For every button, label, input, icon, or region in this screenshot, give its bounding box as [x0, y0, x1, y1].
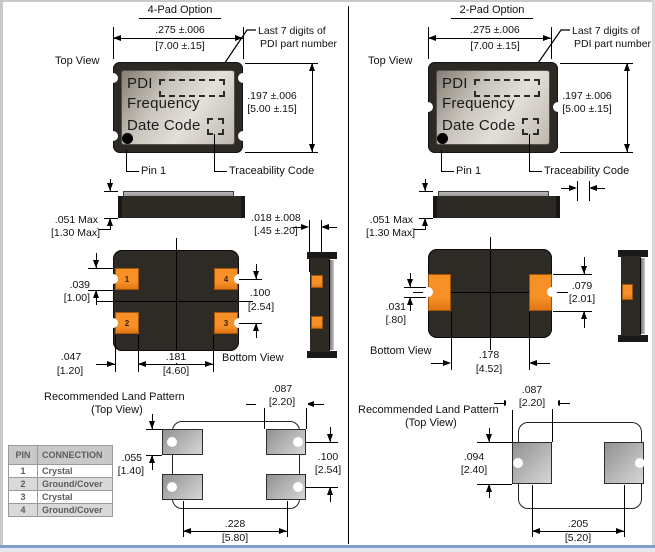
package-frequency: Frequency	[442, 95, 515, 112]
left-land-pad-w-in: .087	[256, 383, 308, 395]
leader-line	[441, 171, 454, 172]
ext-line	[239, 279, 262, 280]
edge-pad	[311, 316, 323, 329]
pin1-dot	[437, 133, 448, 144]
ext-line	[213, 335, 214, 372]
ext-line	[512, 410, 513, 442]
ext-line	[115, 335, 116, 372]
ext-line	[553, 274, 592, 275]
table-row: 3 Crystal	[9, 491, 113, 504]
right-side-view-body	[433, 196, 560, 218]
castellation-notch	[238, 73, 248, 83]
castellation-notch	[108, 318, 118, 328]
arrowhead	[428, 35, 436, 41]
arrowhead	[138, 361, 146, 367]
left-dim-height-in: .197 ±.006	[238, 90, 306, 102]
dim-line	[113, 38, 243, 39]
pad-1: 1	[115, 268, 139, 290]
centerline	[97, 301, 253, 302]
ext-line	[551, 27, 552, 59]
ext-line	[451, 312, 452, 370]
ext-line	[245, 152, 318, 153]
leader-line	[126, 171, 139, 172]
land-notch	[167, 437, 177, 447]
ext-line	[404, 287, 426, 288]
right-dim-notch-mm: [.80]	[372, 314, 406, 326]
arrowhead	[569, 185, 577, 191]
cell-connection: Ground/Cover	[38, 478, 113, 491]
ext-line	[419, 191, 433, 192]
package-date-code: Date Code	[127, 117, 201, 134]
arrowhead	[279, 528, 287, 534]
edge-body	[310, 258, 330, 352]
arrowhead	[113, 35, 121, 41]
dim-line	[597, 188, 605, 189]
edge-cap	[307, 351, 337, 358]
package-date-code: Date Code	[442, 117, 516, 134]
ext-line	[560, 152, 633, 153]
right-bottom-view-label: Bottom View	[370, 345, 432, 357]
left-top-view-label: Top View	[55, 55, 99, 67]
right-package-top-view: PDI Frequency Date Code	[428, 62, 558, 153]
land-notch	[293, 437, 303, 447]
arrowhead	[309, 63, 315, 71]
right-dim-pitch-h-in: .178	[464, 349, 514, 361]
ext-line	[146, 429, 162, 430]
left-land-pitch-v-mm: [2.54]	[309, 464, 347, 476]
left-land-pitch-h-mm: [5.80]	[207, 532, 263, 544]
ext-line	[287, 501, 288, 537]
left-land-title2: (Top View)	[91, 404, 143, 416]
arrowhead	[581, 266, 587, 274]
arrowhead	[422, 218, 428, 226]
left-land-pitch-v-in: .100	[311, 451, 345, 463]
left-dim-pad-w-in: .047	[50, 351, 92, 363]
left-section-title: 4-Pad Option	[139, 4, 221, 19]
ext-line	[243, 27, 244, 59]
left-dim-pad-h-in: .039	[48, 279, 90, 291]
ext-line	[113, 27, 114, 59]
traceability-box	[207, 118, 224, 135]
dim-line	[246, 404, 256, 405]
dim-line	[627, 63, 628, 152]
leader-line	[529, 171, 542, 172]
arrowhead	[486, 484, 492, 492]
castellation-notch	[423, 102, 433, 112]
left-dim-width-in: .275 ±.006	[137, 24, 223, 36]
package-brand: PDI	[442, 75, 468, 92]
left-dim-pitch-h-in: .181	[153, 351, 199, 363]
arrowhead	[532, 528, 540, 534]
edge-lid	[329, 260, 334, 350]
left-dim-pitch-v-mm: [2.54]	[240, 301, 282, 313]
leader-line	[126, 150, 127, 171]
left-dim-thick-mm: [1.30 Max]	[34, 227, 100, 239]
castellation-notch	[108, 73, 118, 83]
right-edge-view	[618, 250, 648, 342]
dim-line	[312, 63, 313, 152]
ext-line	[428, 27, 429, 59]
left-traceability-label: Traceability Code	[229, 165, 314, 177]
castellation-notch	[108, 274, 118, 284]
arrowhead	[93, 260, 99, 268]
ext-line	[306, 442, 338, 443]
edge-pad	[311, 275, 323, 288]
right-dim-thick-in: .051 Max	[353, 214, 413, 226]
edge-lid	[640, 258, 645, 334]
arrowhead	[443, 360, 451, 366]
cell-pin: 4	[9, 504, 38, 517]
left-land-pad-h-in: .055	[110, 452, 142, 464]
right-callout-line1: Last 7 digits of	[572, 25, 640, 37]
left-package-top-view: PDI Frequency Date Code	[113, 62, 243, 153]
arrowhead	[486, 434, 492, 442]
dim-line	[537, 363, 550, 364]
ext-line	[245, 63, 318, 64]
arrowhead	[327, 487, 333, 495]
table-row: 2 Ground/Cover	[9, 478, 113, 491]
arrowhead	[616, 528, 624, 534]
left-callout-line1: Last 7 digits of	[258, 25, 326, 37]
ext-line	[589, 181, 590, 201]
right-land-pad-w-in: .087	[506, 384, 558, 396]
right-pin1-label: Pin 1	[456, 165, 481, 177]
right-land-title2: (Top View)	[405, 417, 457, 429]
dim-line	[329, 227, 337, 228]
package-brand: PDI	[127, 75, 153, 92]
arrowhead	[624, 63, 630, 71]
pin-connection-table: PIN CONNECTION 1 Crystal 2 Ground/Cover …	[8, 445, 113, 517]
arrowhead	[183, 528, 191, 534]
castellation-notch	[108, 131, 118, 141]
left-dim-lid-in: .018 ±.008	[246, 212, 306, 224]
left-land-title1: Recommended Land Pattern	[44, 391, 185, 403]
arrowhead	[235, 35, 243, 41]
ext-line	[477, 442, 512, 443]
land-notch	[635, 458, 645, 468]
edge-pad	[622, 284, 633, 300]
arrowhead	[149, 455, 155, 463]
right-land-title1: Recommended Land Pattern	[358, 404, 499, 416]
left-pin1-label: Pin 1	[141, 165, 166, 177]
cell-pin: 3	[9, 491, 38, 504]
left-dim-height-mm: [5.00 ±.15]	[236, 103, 308, 115]
right-traceability-label: Traceability Code	[544, 165, 629, 177]
arrowhead	[422, 183, 428, 191]
leader-line	[414, 229, 425, 230]
left-land-pad-w-mm: [2.20]	[256, 396, 308, 408]
dim-line	[494, 403, 504, 404]
left-edge-view	[307, 252, 337, 358]
pin1-dot	[122, 133, 133, 144]
castellation-notch	[547, 287, 557, 297]
right-land-pad-h-mm: [2.40]	[451, 464, 497, 476]
traceability-box	[522, 118, 539, 135]
mechanical-drawing-page: 4-Pad Option .275 ±.006 [7.00 ±.15] Top …	[0, 0, 655, 552]
cell-connection: Crystal	[38, 465, 113, 478]
arrowhead	[543, 35, 551, 41]
package-frequency: Frequency	[127, 95, 200, 112]
table-header-pin: PIN	[9, 446, 38, 465]
arrowhead	[149, 421, 155, 429]
right-dim-thick-mm: [1.30 Max]	[349, 227, 415, 239]
arrowhead	[301, 224, 309, 230]
left-dim-pad-h-mm: [1.00]	[44, 292, 90, 304]
left-land-pitch-h-in: .228	[210, 518, 260, 530]
castellation-notch	[423, 287, 433, 297]
leader-line	[214, 134, 215, 171]
table-row: 1 Crystal	[9, 465, 113, 478]
cell-pin: 1	[9, 465, 38, 478]
arrowhead	[107, 361, 115, 367]
arrowhead	[321, 224, 329, 230]
arrowhead	[407, 279, 413, 287]
right-dim-notch-in: .031	[374, 301, 406, 313]
arrowhead	[407, 297, 413, 305]
left-dim-width-mm: [7.00 ±.15]	[137, 40, 223, 52]
right-top-view-label: Top View	[368, 55, 412, 67]
left-dim-thick-in: .051 Max	[38, 214, 98, 226]
left-dim-pad-w-mm: [1.20]	[46, 365, 94, 377]
leader-line	[529, 134, 530, 171]
arrowhead	[327, 434, 333, 442]
ext-line	[306, 487, 338, 488]
right-land-pad-h-in: .094	[454, 451, 494, 463]
table-row: 4 Ground/Cover	[9, 504, 113, 517]
cell-connection: Ground/Cover	[38, 504, 113, 517]
arrowhead	[107, 183, 113, 191]
cell-connection: Crystal	[38, 491, 113, 504]
left-side-view-body	[118, 196, 245, 218]
arrowhead	[529, 360, 537, 366]
arrowhead	[107, 218, 113, 226]
ext-line	[88, 268, 115, 269]
left-dim-pitch-v-in: .100	[243, 287, 277, 299]
arrowhead	[205, 361, 213, 367]
dim-line	[314, 404, 324, 405]
arrowhead	[93, 290, 99, 298]
arrowhead	[624, 144, 630, 152]
part-number-box	[474, 79, 540, 97]
left-bottom-view-label: Bottom View	[222, 352, 284, 364]
right-dim-width-in: .275 ±.006	[452, 24, 538, 36]
right-section-title: 2-Pad Option	[451, 4, 533, 19]
right-dim-height-in: .197 ±.006	[553, 90, 621, 102]
left-dim-pitch-h-mm: [4.60]	[150, 365, 202, 377]
land-notch	[293, 482, 303, 492]
part-number-box	[159, 79, 225, 97]
leader-line	[214, 171, 227, 172]
left-callout-line2: PDI part number	[260, 38, 337, 50]
leader-line	[99, 229, 110, 230]
right-dim-width-mm: [7.00 ±.15]	[452, 40, 538, 52]
castellation-notch	[238, 131, 248, 141]
land-notch	[167, 482, 177, 492]
ext-line	[477, 484, 512, 485]
right-dim-pad-h-mm: [2.01]	[557, 293, 607, 305]
centerline	[490, 237, 491, 350]
arrowhead	[581, 311, 587, 319]
ext-line	[104, 191, 118, 192]
right-land-pad-w-mm: [2.20]	[506, 397, 558, 409]
arrowhead	[589, 185, 597, 191]
arrowhead	[309, 144, 315, 152]
land-notch	[513, 458, 523, 468]
right-land-pitch-h-in: .205	[552, 518, 604, 530]
right-callout-line2: PDI part number	[574, 38, 651, 50]
ext-line	[624, 485, 625, 537]
right-dim-pad-h-in: .079	[560, 280, 604, 292]
right-dim-height-mm: [5.00 ±.15]	[551, 103, 623, 115]
table-header-connection: CONNECTION	[38, 446, 113, 465]
right-land-pitch-h-mm: [5.20]	[549, 532, 607, 544]
pad-2: 2	[115, 312, 139, 334]
dim-line	[428, 38, 551, 39]
dim-line	[293, 227, 301, 228]
cell-pin: 2	[9, 478, 38, 491]
dim-line	[561, 188, 569, 189]
arrowhead	[253, 271, 259, 279]
edge-cap	[618, 335, 648, 342]
ext-line	[577, 181, 578, 201]
arrowhead	[253, 323, 259, 331]
right-dim-pitch-h-mm: [4.52]	[461, 363, 517, 375]
ext-line	[560, 63, 633, 64]
dim-line	[560, 403, 570, 404]
leader-line	[441, 150, 442, 171]
